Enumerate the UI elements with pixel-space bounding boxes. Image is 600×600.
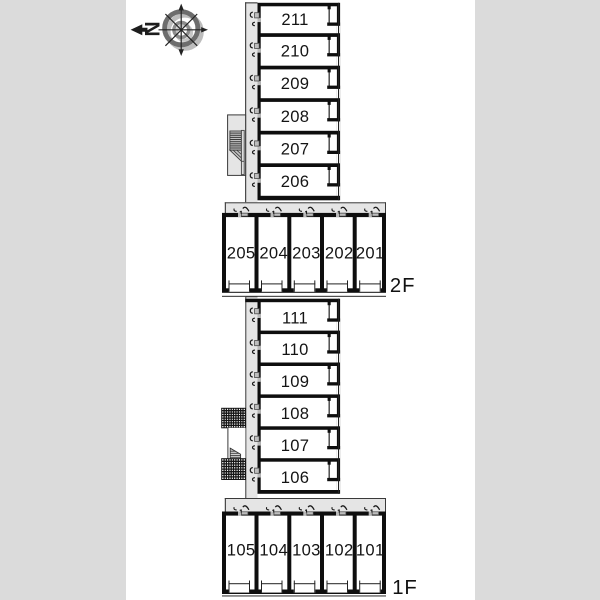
svg-text:2F: 2F [390,275,415,297]
svg-text:108: 108 [281,404,310,423]
svg-text:202: 202 [325,243,354,262]
svg-text:207: 207 [281,139,310,158]
svg-text:208: 208 [281,107,310,126]
svg-text:203: 203 [292,243,321,262]
svg-text:204: 204 [259,243,288,262]
svg-text:201: 201 [356,243,385,262]
svg-text:102: 102 [325,540,354,559]
svg-text:206: 206 [281,172,310,191]
svg-text:107: 107 [281,436,310,455]
svg-text:103: 103 [292,540,321,559]
svg-text:101: 101 [356,540,385,559]
svg-text:N: N [140,21,163,36]
svg-text:106: 106 [281,468,310,487]
svg-text:209: 209 [281,74,310,93]
svg-text:109: 109 [281,372,310,391]
svg-text:111: 111 [282,308,308,327]
svg-text:1F: 1F [392,577,417,599]
svg-text:211: 211 [281,10,308,29]
svg-text:210: 210 [281,42,310,61]
svg-text:205: 205 [227,243,256,262]
svg-text:104: 104 [259,540,288,559]
svg-text:105: 105 [227,540,256,559]
svg-text:110: 110 [281,340,308,359]
